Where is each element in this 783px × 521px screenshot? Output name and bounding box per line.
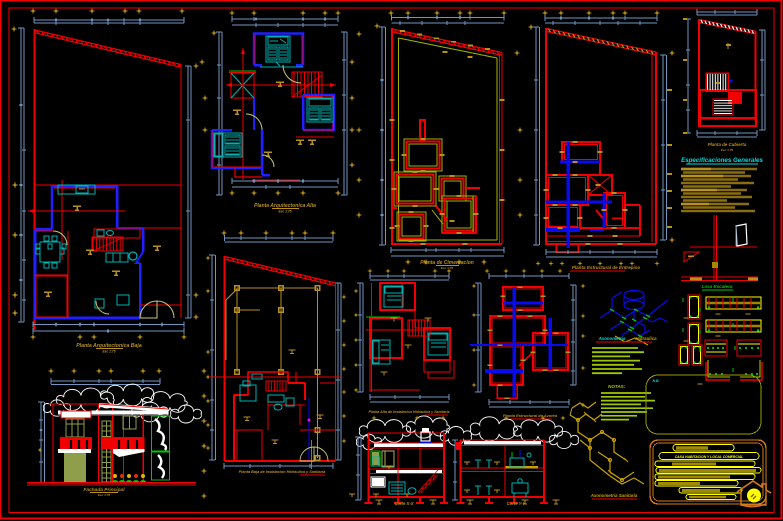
svg-text:NOTAS:: NOTAS:	[608, 384, 626, 389]
svg-text:Planta Alta de Instalacion Hid: Planta Alta de Instalacion Hidraulica y …	[369, 410, 450, 414]
svg-text:Planta Estructural de Azotea: Planta Estructural de Azotea	[503, 413, 558, 418]
svg-text:Planta Arquitectonica Alta: Planta Arquitectonica Alta	[254, 203, 316, 209]
svg-text:Esc 1:75: Esc 1:75	[721, 148, 734, 152]
svg-text:Axonometria: Axonometria	[598, 336, 626, 341]
svg-text:Planta de Cubierta: Planta de Cubierta	[708, 142, 747, 147]
svg-text:N.B.: N.B.	[653, 379, 660, 383]
svg-text:Esc 1:75: Esc 1:75	[98, 493, 111, 497]
svg-text:Planta Estructural de Entrepis: Planta Estructural de Entrepiso	[572, 265, 641, 270]
svg-text:Losa Escalera: Losa Escalera	[702, 284, 733, 289]
svg-text:Esc 1:75: Esc 1:75	[441, 266, 454, 270]
svg-text:Planta Arquitectonica Baja: Planta Arquitectonica Baja	[76, 343, 142, 349]
svg-text:Axonometria Sanitaria: Axonometria Sanitaria	[590, 493, 638, 498]
svg-text:Hidraulica: Hidraulica	[635, 336, 657, 341]
svg-text:Corte X-X: Corte X-X	[394, 501, 413, 506]
svg-text:Especificaciones Generales: Especificaciones Generales	[681, 157, 763, 164]
svg-text:Esc 1:75: Esc 1:75	[103, 350, 116, 354]
svg-text:CASA HABITACION Y LOCAL COMERC: CASA HABITACION Y LOCAL COMERCIAL	[675, 455, 744, 459]
svg-text:Esc 1:75: Esc 1:75	[279, 210, 292, 214]
svg-text:Planta Baja de Instalacion Hid: Planta Baja de Instalacion Hidraulica y …	[239, 470, 326, 474]
